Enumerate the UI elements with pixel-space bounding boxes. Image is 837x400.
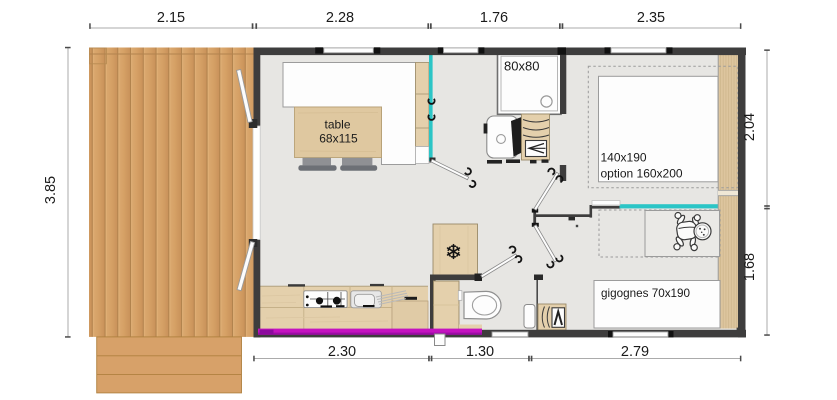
svg-text:1.68: 1.68 — [742, 253, 758, 281]
svg-text:80x80: 80x80 — [504, 59, 539, 74]
svg-text:gigognes 70x190: gigognes 70x190 — [601, 287, 691, 300]
svg-text:2.15: 2.15 — [157, 10, 185, 26]
svg-text:2.79: 2.79 — [621, 344, 649, 360]
svg-text:68x115: 68x115 — [319, 132, 358, 146]
svg-text:option 160x200: option 160x200 — [601, 167, 683, 181]
svg-text:1.76: 1.76 — [480, 10, 508, 26]
svg-text:2.28: 2.28 — [326, 10, 354, 26]
svg-text:2.35: 2.35 — [637, 10, 665, 26]
svg-text:2.30: 2.30 — [328, 344, 356, 360]
svg-text:table: table — [324, 118, 350, 132]
svg-text:1.30: 1.30 — [466, 344, 494, 360]
svg-text:3.85: 3.85 — [43, 176, 59, 204]
svg-text:2.04: 2.04 — [742, 113, 758, 141]
svg-text:140x190: 140x190 — [601, 151, 647, 165]
